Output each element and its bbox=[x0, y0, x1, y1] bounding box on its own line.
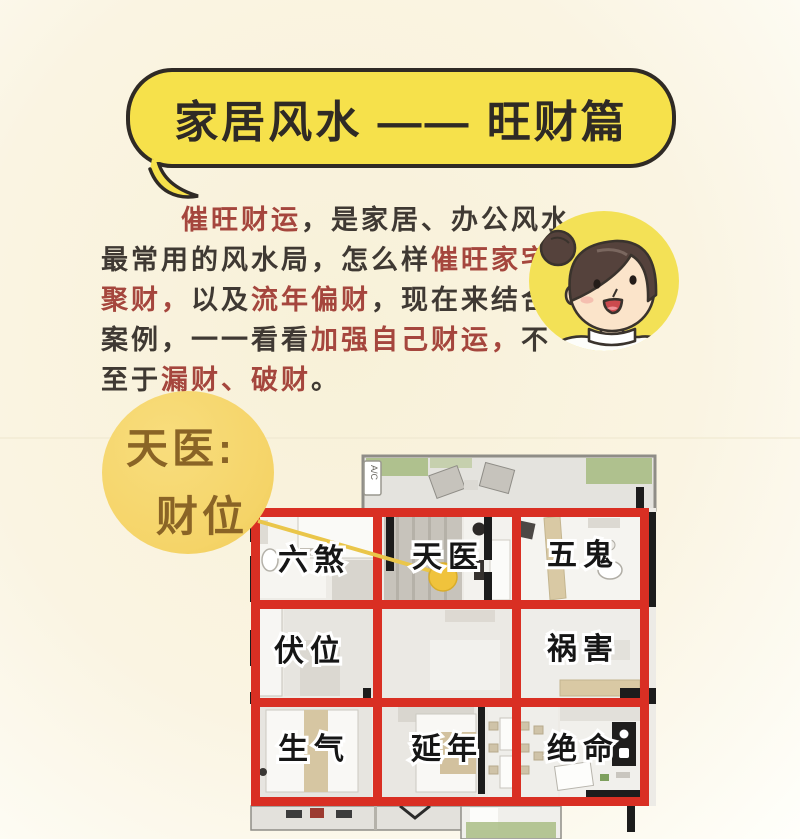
cell-label-tianyi: 天医 bbox=[412, 541, 484, 574]
callout-line2: 财位 bbox=[156, 483, 248, 544]
intro-line: 案例，一一看看加强自己财运，不 bbox=[101, 320, 539, 360]
cell-label-huohai: 祸害 bbox=[547, 633, 619, 666]
body-text: 案例，一一看看 bbox=[101, 325, 311, 355]
ac-tag-label: A/C bbox=[369, 465, 379, 481]
body-text: 最常用的风水局，怎么样 bbox=[101, 245, 431, 275]
balcony-top: A/C bbox=[363, 456, 655, 510]
intro-line: 催旺财运，是家居、办公风水 bbox=[101, 200, 539, 240]
lower-plan-strip bbox=[251, 806, 561, 839]
body-text: 。 bbox=[311, 365, 341, 395]
cell-label-shengqi: 生气 bbox=[278, 733, 350, 766]
body-text: 以及 bbox=[191, 285, 251, 315]
callout-line1: 天医: bbox=[126, 415, 236, 476]
highlight-text: 加强自己财运， bbox=[311, 325, 521, 355]
highlight-text: 流年偏财 bbox=[251, 285, 371, 315]
body-text: ，现在来结合 bbox=[371, 285, 551, 315]
cell-label-jueming: 绝命 bbox=[547, 732, 619, 766]
cell-label-liusha: 六煞 bbox=[278, 544, 350, 577]
page-title: 家居风水 —— 旺财篇 bbox=[174, 86, 627, 150]
intro-paragraph: 催旺财运，是家居、办公风水 最常用的风水局，怎么样催旺家宅 聚财，以及流年偏财，… bbox=[101, 200, 539, 400]
intro-line: 聚财，以及流年偏财，现在来结合 bbox=[101, 280, 539, 320]
cell-label-fuwei: 伏位 bbox=[274, 634, 346, 668]
intro-line: 最常用的风水局，怎么样催旺家宅 bbox=[101, 240, 539, 280]
highlight-text: 催旺财运 bbox=[181, 205, 301, 235]
speech-bubble-tail bbox=[146, 153, 210, 203]
woman-bun-avatar-icon bbox=[527, 207, 683, 355]
body-text: 至于 bbox=[101, 365, 161, 395]
floorplan-diagram: A/C bbox=[245, 450, 665, 839]
cell-label-wugui: 五鬼 bbox=[547, 539, 619, 572]
highlight-text: 聚财， bbox=[101, 285, 191, 315]
cell-label-yannian: 延年 bbox=[410, 733, 483, 766]
wealth-position-callout: 天医: 财位 bbox=[102, 391, 274, 554]
fengshui-infographic: 家居风水 —— 旺财篇 催旺财运，是家居、办公风水 最常用的风水局，怎么样催旺家… bbox=[0, 0, 800, 839]
